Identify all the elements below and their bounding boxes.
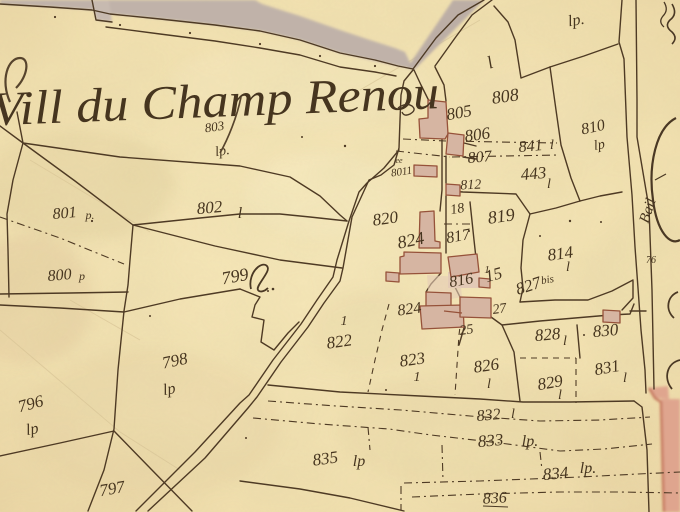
svg-text:807: 807 (467, 148, 493, 167)
svg-text:800: 800 (47, 266, 72, 285)
svg-text:835: 835 (311, 447, 339, 469)
svg-text:841: 841 (518, 137, 543, 156)
svg-text:l: l (487, 377, 491, 392)
svg-text:806: 806 (463, 123, 491, 145)
svg-text:824: 824 (396, 299, 422, 319)
svg-text:25: 25 (459, 322, 475, 339)
svg-text:l: l (623, 371, 627, 386)
svg-text:832: 832 (476, 406, 501, 425)
svg-text:823: 823 (398, 348, 426, 370)
svg-text:ee: ee (395, 156, 403, 165)
svg-text:lp: lp (353, 453, 365, 470)
svg-text:18: 18 (449, 201, 465, 218)
svg-text:p.: p. (85, 208, 95, 222)
svg-text:833: 833 (477, 430, 504, 451)
svg-text:76: 76 (646, 255, 656, 266)
svg-text:l: l (563, 334, 567, 349)
svg-text:812: 812 (460, 177, 482, 193)
svg-text:822: 822 (325, 330, 353, 352)
svg-text:836: 836 (482, 489, 507, 507)
svg-text:802: 802 (196, 197, 224, 218)
svg-text:819: 819 (486, 204, 516, 228)
svg-text:826: 826 (472, 354, 500, 376)
svg-text:820: 820 (371, 207, 399, 229)
svg-text:801: 801 (52, 204, 77, 223)
svg-text:834: 834 (542, 463, 570, 484)
svg-text:1: 1 (414, 370, 421, 385)
svg-text:1: 1 (484, 264, 490, 276)
svg-text:l: l (566, 260, 570, 275)
svg-text:l: l (550, 138, 554, 153)
svg-text:lp.: lp. (580, 460, 596, 477)
svg-text:l: l (547, 177, 551, 192)
svg-text:p: p (78, 269, 85, 283)
svg-text:830: 830 (592, 320, 620, 341)
svg-text:808: 808 (490, 84, 520, 108)
svg-text:l: l (558, 388, 562, 403)
svg-text:l: l (238, 205, 243, 222)
svg-text:814: 814 (546, 242, 574, 264)
svg-text:1: 1 (341, 314, 348, 329)
svg-text:lp.: lp. (567, 11, 586, 31)
svg-text:828: 828 (534, 324, 562, 345)
svg-text:lp.: lp. (214, 143, 231, 160)
svg-text:443: 443 (520, 163, 547, 184)
svg-text:l: l (511, 407, 515, 422)
svg-text:bis: bis (540, 273, 555, 287)
svg-text:lp.: lp. (522, 433, 538, 450)
